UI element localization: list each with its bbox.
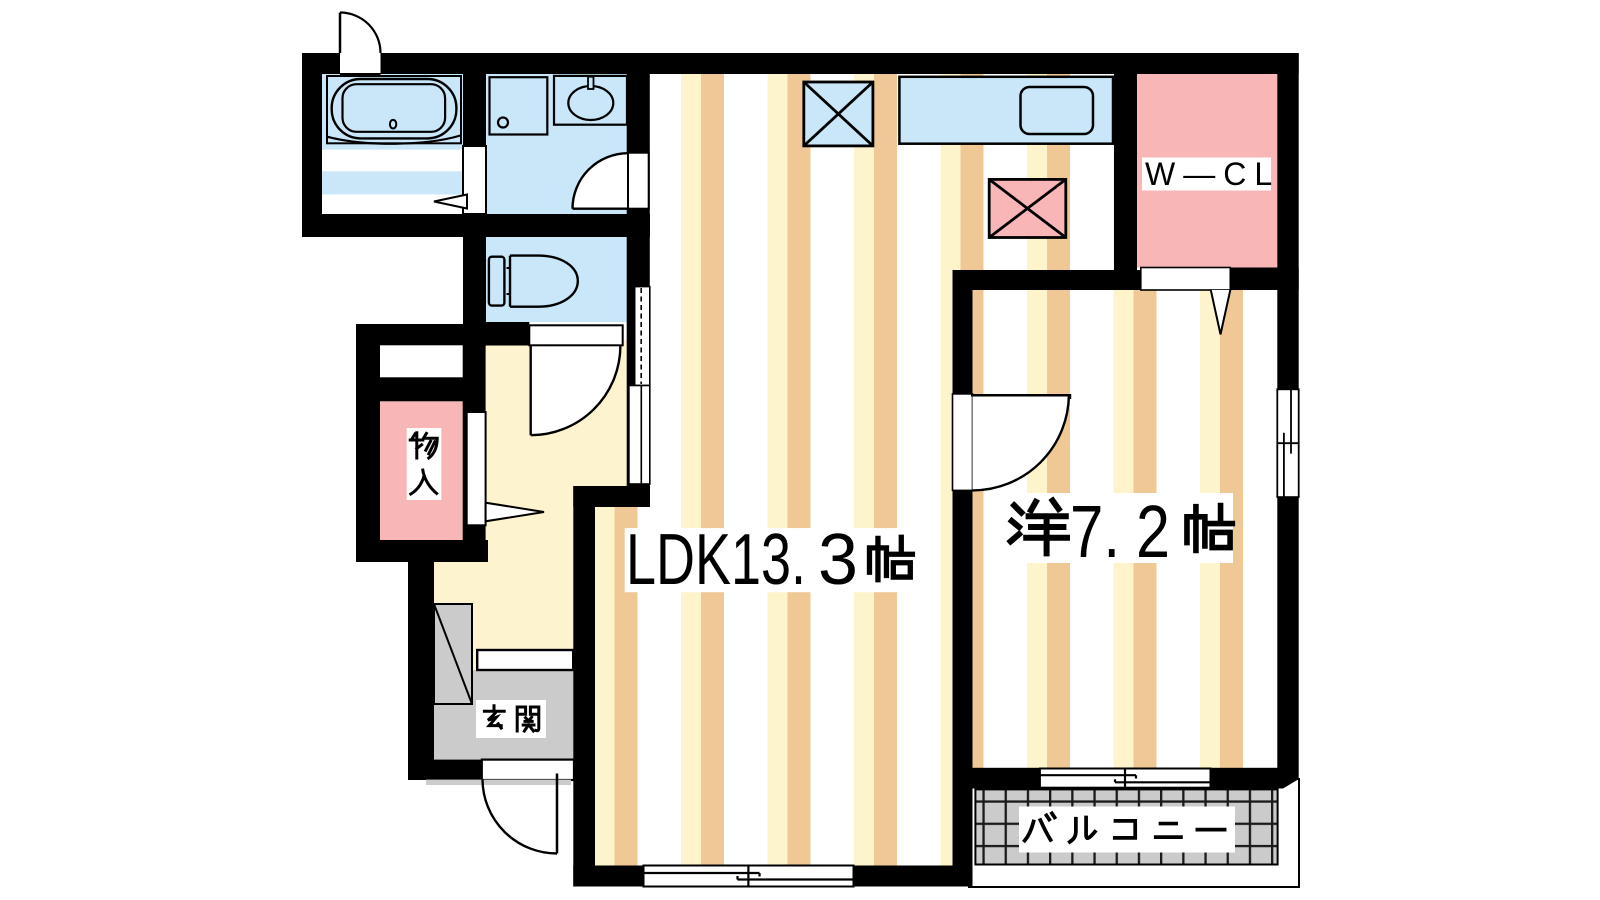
- svg-text:LDK13.: LDK13.: [626, 520, 806, 600]
- svg-text:2: 2: [1136, 490, 1170, 573]
- svg-text:7.: 7.: [1070, 490, 1120, 573]
- svg-text:3: 3: [818, 520, 858, 600]
- svg-text:W—CL: W—CL: [1145, 156, 1280, 192]
